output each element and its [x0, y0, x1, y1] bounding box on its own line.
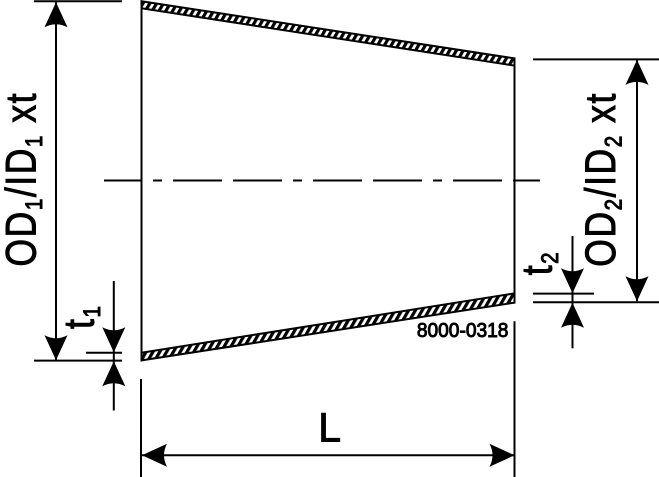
svg-text:8000-0318: 8000-0318	[417, 320, 509, 342]
svg-text:OD1/ID1 xt: OD1/ID1 xt	[0, 92, 47, 267]
svg-text:OD2/ID2 xt: OD2/ID2 xt	[578, 92, 627, 267]
svg-text:L: L	[318, 404, 341, 450]
